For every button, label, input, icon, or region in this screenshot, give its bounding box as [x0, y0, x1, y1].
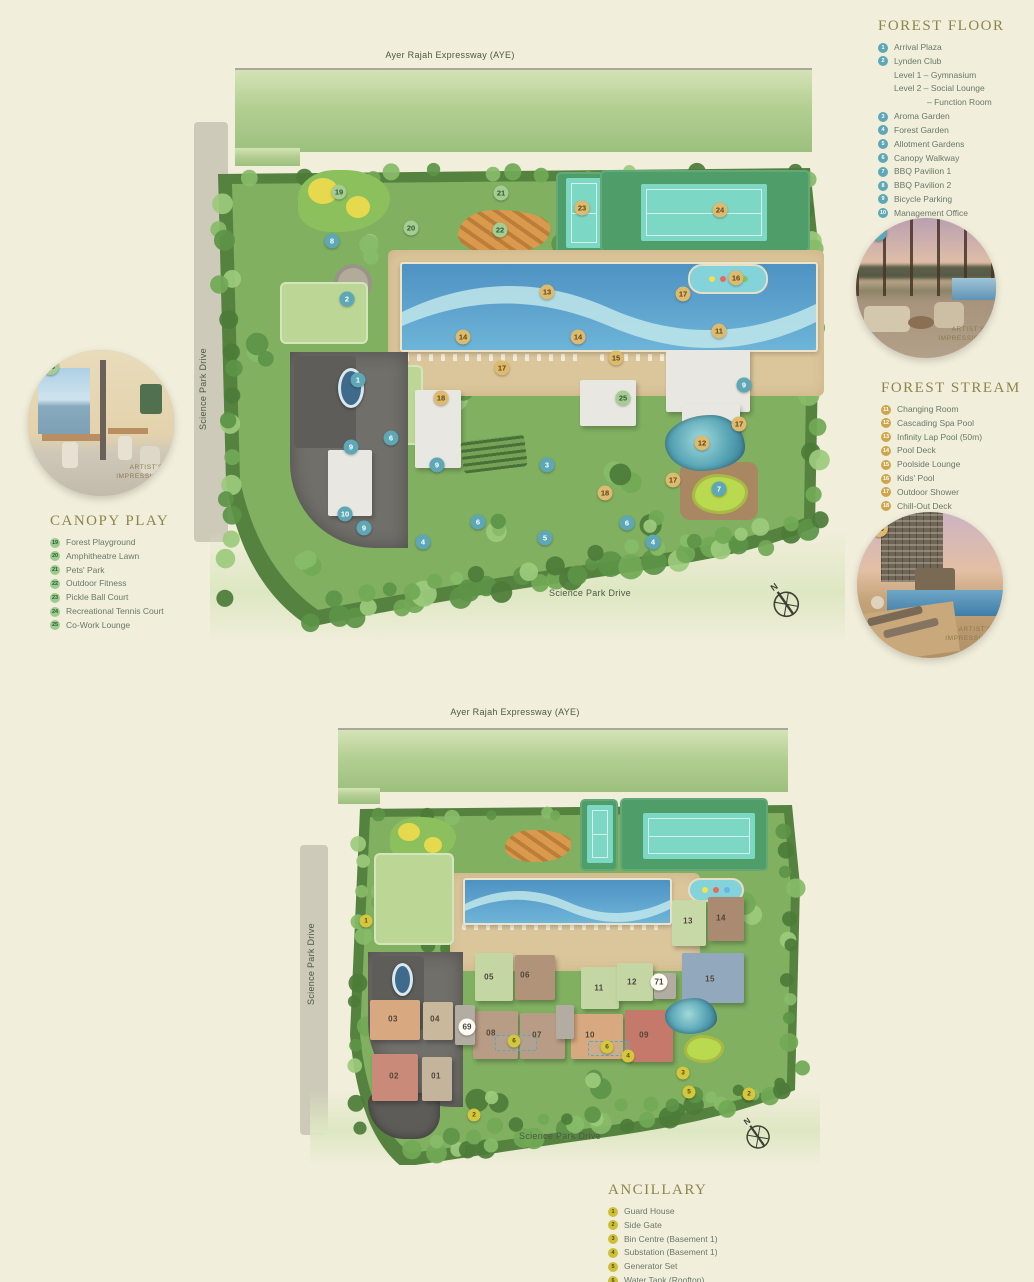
legend-item: 5Allotment Gardens	[878, 139, 1028, 150]
legend-badge: 13	[881, 432, 891, 442]
map-marker-9: 9	[737, 378, 752, 393]
block-label-02: 02	[389, 1072, 399, 1081]
legend-item: 15Poolside Lounge	[881, 459, 1031, 470]
map-marker-22: 22	[493, 223, 508, 238]
block-label-08: 08	[486, 1029, 496, 1038]
map-marker-2: 2	[743, 1088, 756, 1101]
legend-item-label: Infinity Lap Pool (50m)	[897, 432, 982, 443]
legend-badge: 10	[878, 208, 888, 218]
map-marker-14: 14	[571, 330, 586, 345]
legend-title: CANOPY PLAY	[50, 513, 210, 530]
block-label-14: 14	[716, 914, 726, 923]
artists-impression-caption: ARTIST'S IMPRESSION	[107, 463, 163, 481]
legend-badge: 14	[881, 446, 891, 456]
legend-badge: 2	[608, 1220, 618, 1230]
legend-item: 3Bin Centre (Basement 1)	[608, 1234, 778, 1245]
block-label-11: 11	[594, 984, 603, 993]
legend-title: FOREST STREAM	[881, 380, 1031, 397]
legend-item-label: Lynden Club	[894, 56, 941, 67]
legend-item: 5Generator Set	[608, 1261, 778, 1272]
map-marker-6: 6	[471, 515, 486, 530]
legend-item-label: Allotment Gardens	[894, 139, 964, 150]
legend-badge: 1	[608, 1207, 618, 1217]
photo-co-work-lounge: 25 ARTIST'S IMPRESSION	[28, 350, 174, 496]
legend-item-label: Management Office	[894, 208, 968, 219]
map-marker-9: 9	[430, 458, 445, 473]
legend-item: 18Chill-Out Deck	[881, 501, 1031, 512]
legend-title: FOREST FLOOR	[878, 18, 1028, 35]
map-marker-4: 4	[646, 535, 661, 550]
legend-badge: 17	[881, 487, 891, 497]
legend-item-label: Outdoor Fitness	[66, 578, 126, 589]
legend-item: 4Substation (Basement 1)	[608, 1247, 778, 1258]
map-marker-16: 16	[729, 271, 744, 286]
legend-badge: 22	[50, 579, 60, 589]
top-map-markers: 1234456667899991011121314141516171717171…	[210, 52, 845, 642]
map-marker-9: 9	[357, 521, 372, 536]
map-marker-17: 17	[676, 287, 691, 302]
legend-item-label: Chill-Out Deck	[897, 501, 952, 512]
map-marker-23: 23	[575, 201, 590, 216]
legend-item-label: Co-Work Lounge	[66, 620, 130, 631]
legend-badge: 24	[50, 607, 60, 617]
legend-item: 6Water Tank (Rooftop)	[608, 1275, 778, 1282]
artists-impression-caption: ARTIST'S IMPRESSION	[936, 625, 992, 643]
legend-item: 22Outdoor Fitness	[50, 578, 210, 589]
legend-badge: 3	[608, 1234, 618, 1244]
legend-item: 6Canopy Walkway	[878, 153, 1028, 164]
map-marker-24: 24	[713, 203, 728, 218]
photo-lap-pool: 13 ARTIST'S IMPRESSION	[857, 512, 1003, 658]
legend-badge: 16	[881, 474, 891, 484]
legend-forest-stream: FOREST STREAM 11Changing Room12Cascading…	[881, 380, 1031, 515]
legend-item: 8BBQ Pavilion 2	[878, 180, 1028, 191]
legend-badge: 9	[878, 194, 888, 204]
map-marker-1: 1	[351, 373, 366, 388]
legend-badge: 1	[878, 43, 888, 53]
block-label-10: 10	[585, 1031, 595, 1040]
map-marker-12: 12	[695, 436, 710, 451]
legend-item-label: Pickle Ball Court	[66, 592, 128, 603]
legend-item-label: Pool Deck	[897, 445, 936, 456]
block-label-05: 05	[484, 973, 494, 982]
legend-item-label: Poolside Lounge	[897, 459, 960, 470]
map-marker-18: 18	[434, 391, 449, 406]
legend-badge: 4	[878, 125, 888, 135]
legend-forest-floor: FOREST FLOOR 1Arrival Plaza2Lynden ClubL…	[878, 18, 1028, 222]
legend-item-label: Amphitheatre Lawn	[66, 551, 139, 562]
legend-item-label: Generator Set	[624, 1261, 677, 1272]
map-marker-2: 2	[340, 292, 355, 307]
legend-badge: 4	[608, 1248, 618, 1258]
photo-badge: 2	[870, 224, 887, 241]
legend-item: 4Forest Garden	[878, 125, 1028, 136]
block-label-06: 06	[520, 971, 530, 980]
map-marker-4: 4	[622, 1050, 635, 1063]
map-marker-71: 71	[651, 974, 668, 991]
legend-item: 3Aroma Garden	[878, 111, 1028, 122]
legend-badge: 6	[608, 1276, 618, 1282]
site-plan-bottom: Ayer Rajah Expressway (AYE)	[310, 705, 820, 1165]
map-marker-6: 6	[601, 1041, 614, 1054]
legend-item-subline: Level 1 – Gymnasium	[894, 70, 1028, 81]
site-plan-top: Ayer Rajah Expressway (AYE)	[210, 52, 845, 642]
map-marker-14: 14	[456, 330, 471, 345]
legend-badge: 20	[50, 551, 60, 561]
block-label-03: 03	[388, 1015, 398, 1024]
legend-item-label: Forest Playground	[66, 537, 135, 548]
map-marker-9: 9	[344, 440, 359, 455]
legend-item-label: Outdoor Shower	[897, 487, 959, 498]
legend-item-label: Bin Centre (Basement 1)	[624, 1234, 718, 1245]
legend-ancillary: ANCILLARY 1Guard House2Side Gate3Bin Cen…	[608, 1182, 778, 1282]
legend-item-label: Arrival Plaza	[894, 42, 942, 53]
legend-badge: 18	[881, 501, 891, 511]
map-marker-17: 17	[495, 361, 510, 376]
map-marker-3: 3	[540, 458, 555, 473]
legend-item: 19Forest Playground	[50, 537, 210, 548]
legend-item: 20Amphitheatre Lawn	[50, 551, 210, 562]
legend-item-label: Bicycle Parking	[894, 194, 952, 205]
legend-item: 7BBQ Pavilion 1	[878, 166, 1028, 177]
legend-item: 16Kids' Pool	[881, 473, 1031, 484]
map-marker-5: 5	[683, 1086, 696, 1099]
map-marker-11: 11	[712, 324, 727, 339]
legend-item-label: BBQ Pavilion 1	[894, 166, 951, 177]
legend-item: 13Infinity Lap Pool (50m)	[881, 432, 1031, 443]
legend-badge: 3	[878, 112, 888, 122]
photo-badge: 25	[42, 358, 59, 375]
legend-item: 14Pool Deck	[881, 445, 1031, 456]
legend-badge: 11	[881, 405, 891, 415]
map-marker-3: 3	[677, 1067, 690, 1080]
legend-item-label: Cascading Spa Pool	[897, 418, 974, 429]
legend-badge: 19	[50, 538, 60, 548]
legend-item: 24Recreational Tennis Court	[50, 606, 210, 617]
legend-item: 2Side Gate	[608, 1220, 778, 1231]
map-marker-6: 6	[384, 431, 399, 446]
legend-canopy-play: CANOPY PLAY 19Forest Playground20Amphith…	[50, 513, 210, 634]
legend-badge: 7	[878, 167, 888, 177]
map-marker-19: 19	[332, 185, 347, 200]
map-marker-1: 1	[360, 915, 373, 928]
legend-item-subline: – Function Room	[927, 97, 1028, 108]
legend-item: 2Lynden Club	[878, 56, 1028, 67]
legend-item-label: BBQ Pavilion 2	[894, 180, 951, 191]
block-label-09: 09	[639, 1031, 649, 1040]
map-marker-10: 10	[338, 507, 353, 522]
block-label-07: 07	[532, 1031, 542, 1040]
bottom-map-markers: 1223456669710102030405060708091011121314…	[310, 705, 820, 1165]
map-marker-25: 25	[616, 391, 631, 406]
legend-item-label: Aroma Garden	[894, 111, 950, 122]
legend-badge: 15	[881, 460, 891, 470]
legend-item: 10Management Office	[878, 208, 1028, 219]
legend-badge: 5	[608, 1262, 618, 1272]
legend-item-label: Recreational Tennis Court	[66, 606, 164, 617]
map-marker-4: 4	[416, 535, 431, 550]
artists-impression-caption: ARTIST'S IMPRESSION	[929, 325, 985, 343]
block-label-01: 01	[431, 1072, 441, 1081]
legend-item: 12Cascading Spa Pool	[881, 418, 1031, 429]
legend-item: 1Guard House	[608, 1206, 778, 1217]
legend-item: 11Changing Room	[881, 404, 1031, 415]
legend-badge: 8	[878, 181, 888, 191]
map-marker-6: 6	[508, 1035, 521, 1048]
block-label-12: 12	[627, 978, 637, 987]
map-marker-69: 69	[459, 1019, 476, 1036]
photo-lynden-club: 2 ARTIST'S IMPRESSION	[856, 218, 996, 358]
legend-item-label: Guard House	[624, 1206, 675, 1217]
map-marker-15: 15	[609, 351, 624, 366]
legend-item-label: Water Tank (Rooftop)	[624, 1275, 704, 1282]
photo-badge: 13	[871, 520, 888, 537]
legend-item: 1Arrival Plaza	[878, 42, 1028, 53]
legend-title: ANCILLARY	[608, 1182, 778, 1199]
legend-item-label: Forest Garden	[894, 125, 949, 136]
map-marker-13: 13	[540, 285, 555, 300]
map-marker-17: 17	[666, 473, 681, 488]
legend-item-label: Pets' Park	[66, 565, 104, 576]
legend-item-label: Substation (Basement 1)	[624, 1247, 718, 1258]
legend-item-label: Changing Room	[897, 404, 958, 415]
legend-badge: 21	[50, 565, 60, 575]
legend-badge: 25	[50, 620, 60, 630]
map-marker-8: 8	[325, 234, 340, 249]
map-marker-6: 6	[620, 516, 635, 531]
legend-item: 21Pets' Park	[50, 565, 210, 576]
map-marker-18: 18	[598, 486, 613, 501]
legend-badge: 2	[878, 56, 888, 66]
block-label-13: 13	[683, 917, 693, 926]
map-marker-7: 7	[712, 482, 727, 497]
legend-item: 23Pickle Ball Court	[50, 592, 210, 603]
legend-item-subline: Level 2 – Social Lounge	[894, 83, 1028, 94]
map-marker-17: 17	[732, 417, 747, 432]
legend-item-label: Canopy Walkway	[894, 153, 959, 164]
legend-badge: 23	[50, 593, 60, 603]
legend-badge: 12	[881, 418, 891, 428]
legend-item: 25Co-Work Lounge	[50, 620, 210, 631]
map-marker-20: 20	[404, 221, 419, 236]
legend-item: 9Bicycle Parking	[878, 194, 1028, 205]
map-marker-5: 5	[538, 531, 553, 546]
legend-badge: 5	[878, 139, 888, 149]
legend-item: 17Outdoor Shower	[881, 487, 1031, 498]
block-label-15: 15	[705, 975, 715, 984]
legend-item-label: Kids' Pool	[897, 473, 935, 484]
block-label-04: 04	[430, 1015, 440, 1024]
legend-item-label: Side Gate	[624, 1220, 662, 1231]
map-marker-21: 21	[494, 186, 509, 201]
map-marker-2: 2	[468, 1109, 481, 1122]
road-label-science-park-left-top: Science Park Drive	[198, 348, 208, 430]
legend-badge: 6	[878, 153, 888, 163]
page: Ayer Rajah Expressway (AYE)	[0, 0, 1034, 1282]
